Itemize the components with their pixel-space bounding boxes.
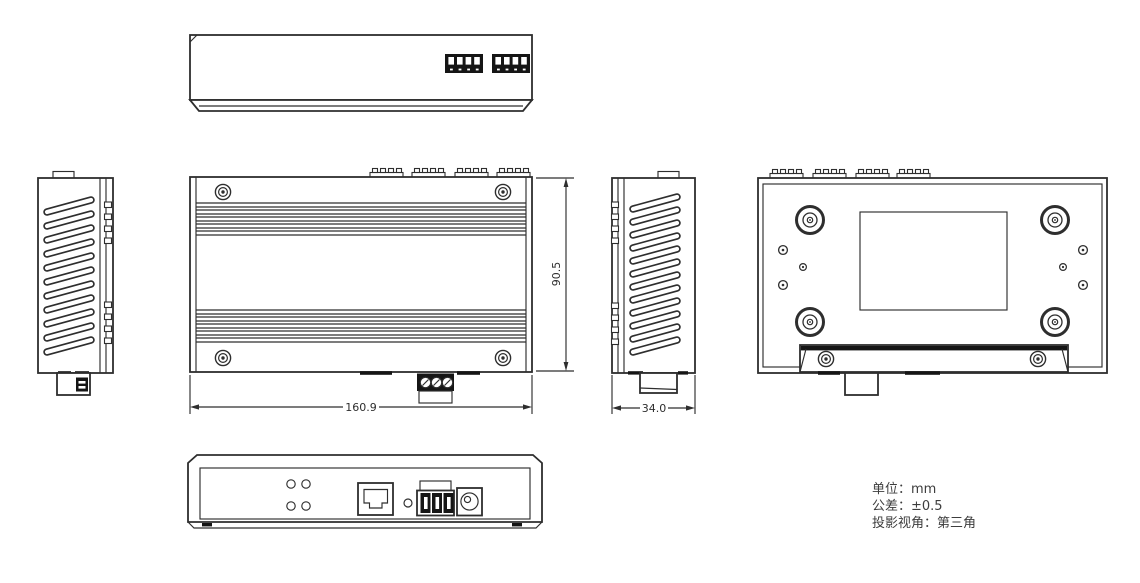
drawing-notes: 单位：mm 公差：±0.5 投影视角：第三角 <box>872 482 976 531</box>
mounting-hole <box>800 264 807 271</box>
mounting-hole <box>1079 246 1088 255</box>
side-connector <box>76 378 88 392</box>
front-view <box>190 169 532 404</box>
back-view <box>758 170 1107 396</box>
mounting-foot <box>797 309 824 336</box>
bottom-panel-view <box>188 455 542 528</box>
top-view <box>190 35 532 111</box>
mounting-hole <box>779 281 788 290</box>
note-tolerance: 公差：±0.5 <box>872 499 943 514</box>
bottom-connector-block <box>640 373 677 393</box>
terminal-block-4pin <box>492 54 530 73</box>
note-unit: 单位：mm <box>872 482 936 497</box>
clip-screw <box>1030 351 1045 366</box>
label-area <box>860 212 1007 310</box>
dimension-width: 160.9 <box>190 375 532 414</box>
front-panel-face <box>188 455 542 522</box>
mounting-foot <box>797 207 824 234</box>
mounting-hole <box>1079 281 1088 290</box>
mounting-hole <box>779 246 788 255</box>
reset-hole <box>404 499 412 507</box>
mounting-foot <box>1042 309 1069 336</box>
enclosure-front-face <box>190 177 532 372</box>
note-projection: 投影视角：第三角 <box>872 515 976 531</box>
corner-screw <box>215 184 230 199</box>
right-side-view <box>612 172 696 394</box>
terminal-block-4pin <box>445 54 483 73</box>
technical-drawing: 160.9 90.5 34.0 单位：mm 公差：±0.5 投影视角：第三角 <box>0 0 1140 583</box>
dim-height-label: 90.5 <box>550 262 563 287</box>
terminal-block-3pin-front <box>417 374 454 404</box>
engineering-drawing-page: 160.9 90.5 34.0 单位：mm 公差：±0.5 投影视角：第三角 <box>0 0 1140 583</box>
terminal-block-3pin <box>417 481 454 516</box>
din-rail-clip-plate <box>800 345 1068 372</box>
dimension-height: 90.5 <box>536 178 574 371</box>
bottom-connector-block <box>845 373 878 395</box>
corner-screw <box>495 184 510 199</box>
dim-depth-label: 34.0 <box>642 402 667 415</box>
clip-screw <box>818 351 833 366</box>
corner-screw <box>215 350 230 365</box>
left-side-view <box>38 172 113 396</box>
dim-width-label: 160.9 <box>345 401 377 414</box>
mounting-hole <box>1060 264 1067 271</box>
corner-screw <box>495 350 510 365</box>
mounting-foot <box>1042 207 1069 234</box>
